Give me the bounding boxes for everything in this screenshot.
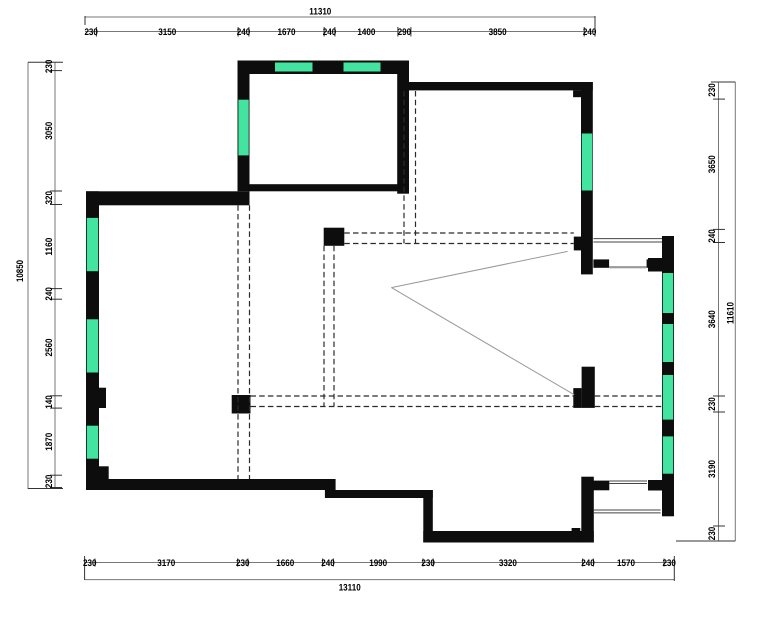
svg-text:240: 240 xyxy=(237,27,251,38)
svg-text:3320: 3320 xyxy=(499,558,517,569)
svg-text:230: 230 xyxy=(707,397,718,411)
svg-text:230: 230 xyxy=(236,558,250,569)
svg-text:3190: 3190 xyxy=(707,460,718,478)
svg-text:10850: 10850 xyxy=(15,260,26,282)
svg-text:13110: 13110 xyxy=(339,583,361,594)
svg-text:230: 230 xyxy=(84,27,98,38)
svg-text:3170: 3170 xyxy=(157,558,175,569)
svg-text:230: 230 xyxy=(83,558,97,569)
svg-text:240: 240 xyxy=(44,287,55,301)
svg-text:1660: 1660 xyxy=(276,558,294,569)
svg-text:2560: 2560 xyxy=(44,339,55,357)
svg-text:1160: 1160 xyxy=(44,238,55,256)
svg-text:290: 290 xyxy=(398,27,412,38)
svg-text:240: 240 xyxy=(323,27,337,38)
svg-text:3650: 3650 xyxy=(707,155,718,173)
svg-text:320: 320 xyxy=(44,191,55,205)
svg-text:1670: 1670 xyxy=(278,27,296,38)
svg-text:240: 240 xyxy=(707,229,718,243)
svg-text:230: 230 xyxy=(44,60,55,74)
svg-text:240: 240 xyxy=(583,27,597,38)
svg-text:230: 230 xyxy=(707,83,718,97)
svg-text:230: 230 xyxy=(707,527,718,541)
svg-text:3640: 3640 xyxy=(707,310,718,328)
svg-text:230: 230 xyxy=(421,558,435,569)
svg-text:3050: 3050 xyxy=(44,122,55,140)
svg-text:1990: 1990 xyxy=(369,558,387,569)
svg-text:11310: 11310 xyxy=(309,7,331,18)
svg-text:230: 230 xyxy=(662,558,676,569)
svg-text:240: 240 xyxy=(581,558,595,569)
svg-text:3850: 3850 xyxy=(489,27,507,38)
svg-text:11610: 11610 xyxy=(726,302,737,324)
svg-text:1870: 1870 xyxy=(44,433,55,451)
svg-text:140: 140 xyxy=(44,395,55,409)
svg-text:240: 240 xyxy=(321,558,335,569)
svg-text:1570: 1570 xyxy=(617,558,635,569)
svg-text:3150: 3150 xyxy=(158,27,176,38)
svg-text:1400: 1400 xyxy=(357,27,375,38)
svg-text:230: 230 xyxy=(44,475,55,489)
